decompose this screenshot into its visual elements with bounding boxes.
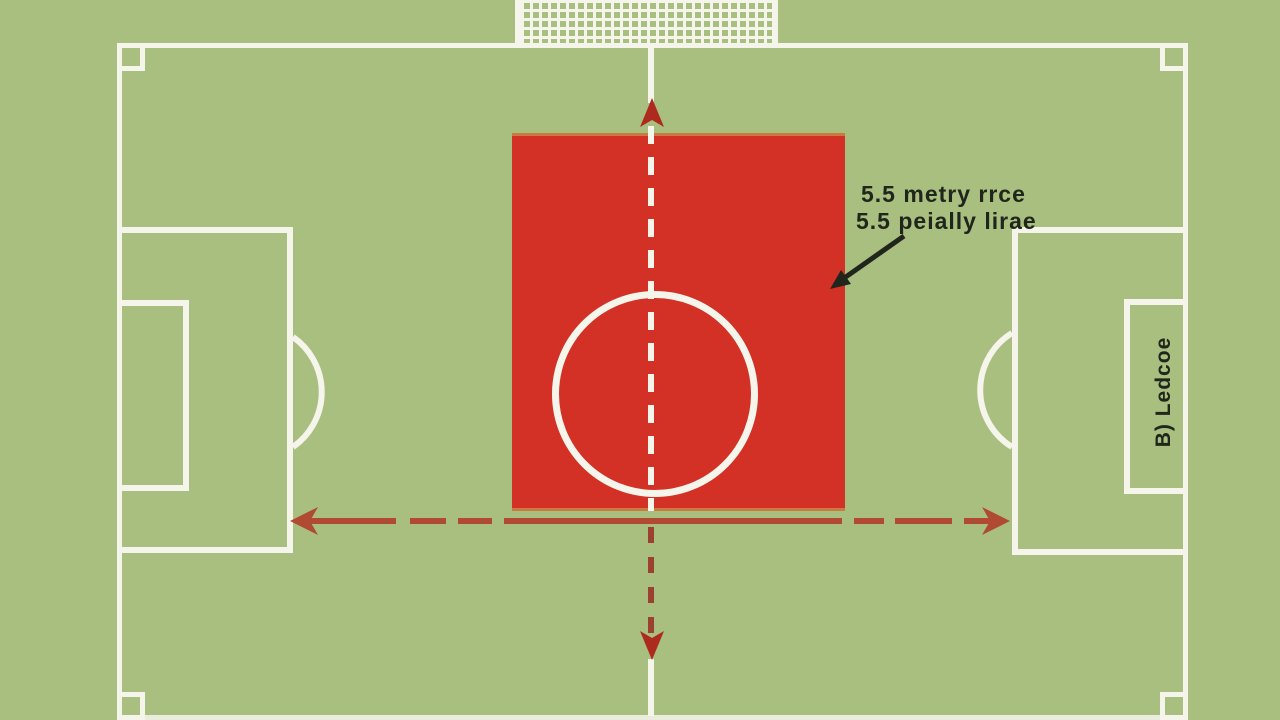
soccer-field-diagram: 5.5 metry rrce 5.5 peially lirae B) Ledc… xyxy=(0,0,1280,720)
annotation-arrow-line xyxy=(840,236,904,281)
annotation-measure-line2: 5.5 peially lirae xyxy=(856,208,1037,235)
penalty-arc-left xyxy=(293,337,322,447)
right-arrowhead-icon xyxy=(982,507,1010,535)
annotation-measure-line1: 5.5 metry rrce xyxy=(861,181,1026,208)
side-label-rotated: B) Ledcoe xyxy=(1152,324,1176,460)
up-arrowhead-icon xyxy=(640,98,664,127)
down-arrowhead-icon xyxy=(640,631,664,660)
penalty-arc-right xyxy=(980,333,1012,447)
left-arrowhead-icon xyxy=(290,507,318,535)
overlay-graphics xyxy=(0,0,1280,720)
